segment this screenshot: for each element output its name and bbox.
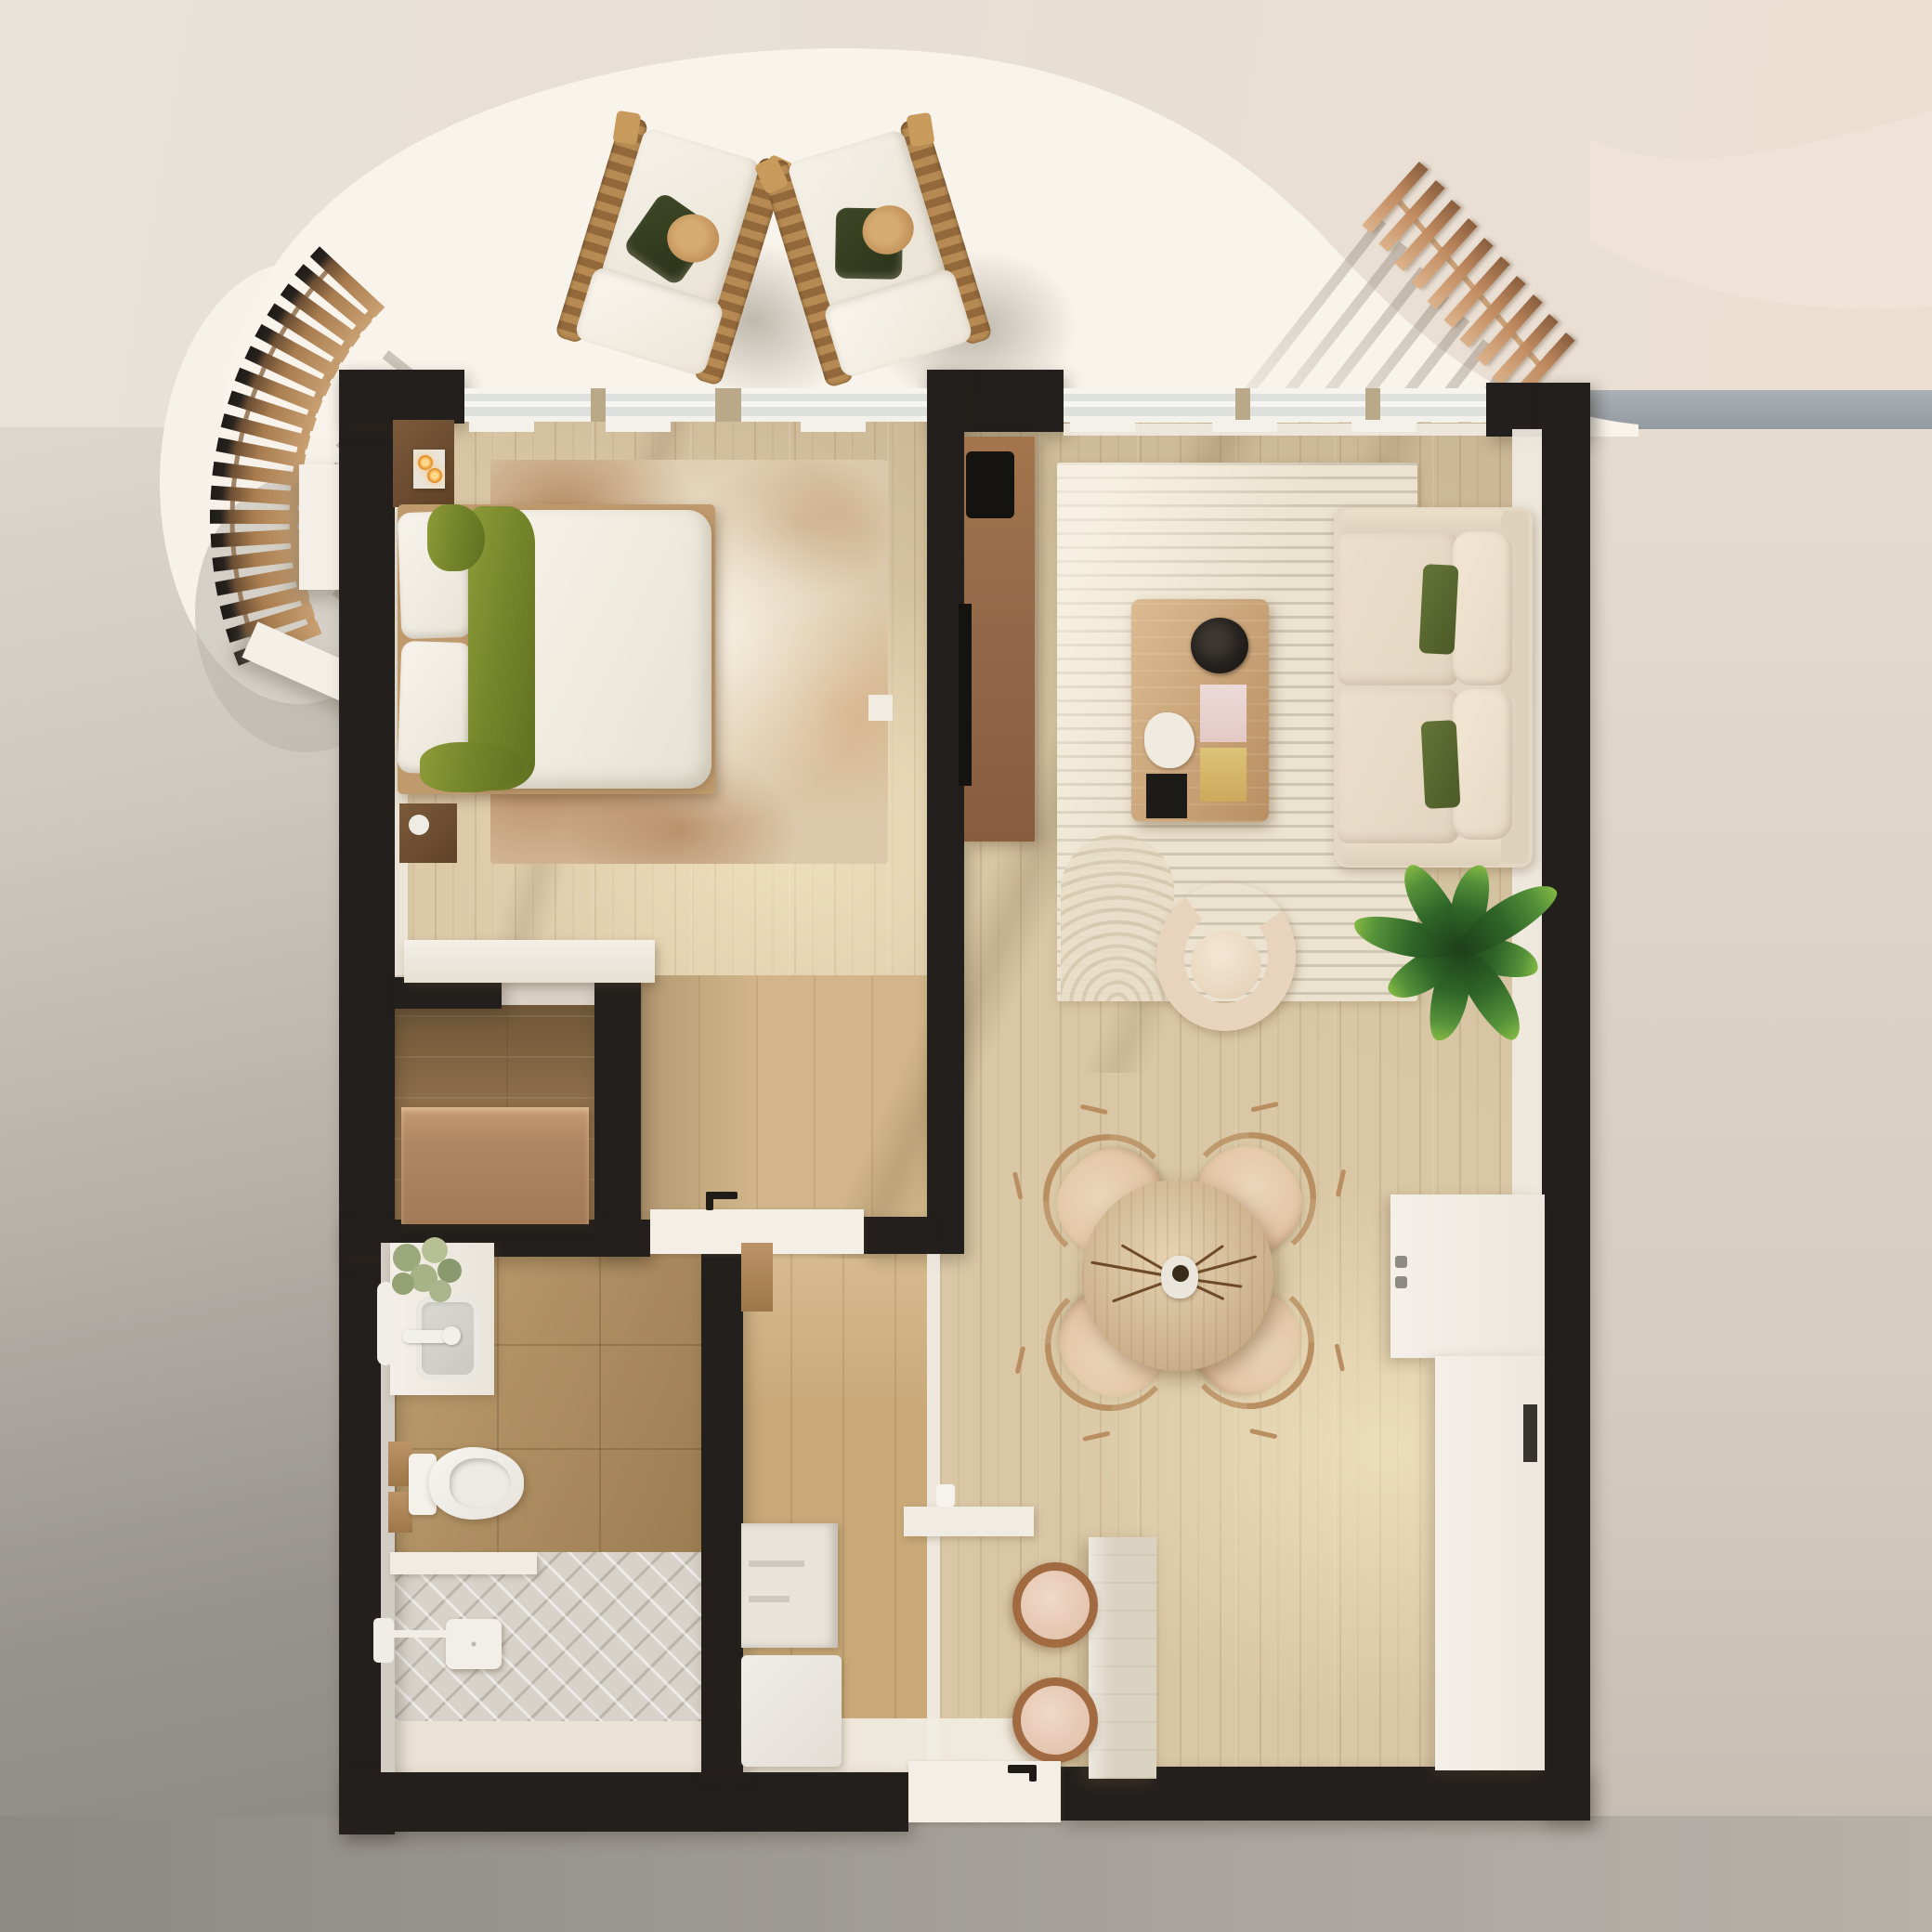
sofa — [1334, 507, 1533, 868]
window-mullion — [715, 388, 741, 422]
nightstand-bottom — [399, 803, 457, 863]
bedroom-window — [464, 388, 927, 422]
wall-top-bedroom — [339, 370, 464, 424]
wall-bathroom-nook — [701, 1254, 743, 1772]
knob — [409, 815, 429, 835]
green-throw-corner — [427, 504, 485, 571]
bar-stool — [1012, 1677, 1098, 1763]
wall-bottom-left — [339, 1772, 908, 1832]
ledge-object — [936, 1484, 955, 1507]
window-mullion — [1235, 388, 1250, 422]
bar-stool — [1012, 1562, 1098, 1648]
faucet-knob — [442, 1326, 461, 1345]
sage-puff — [429, 1280, 451, 1302]
wood-frame-cap — [612, 111, 641, 146]
door-handle — [706, 1192, 713, 1210]
towel-ring — [377, 1282, 394, 1365]
bed — [398, 504, 715, 794]
open-shelf-unit — [741, 1523, 838, 1648]
shower-valve — [373, 1618, 394, 1663]
sofa-back-pillow — [1453, 531, 1512, 685]
pergola-slat — [210, 510, 299, 525]
magazine — [1200, 685, 1247, 742]
cooktop-knob — [1395, 1256, 1407, 1268]
sofa-back-pillow — [1453, 689, 1512, 840]
kitchen-counter-lower — [1435, 1356, 1545, 1770]
kitchen-island — [1089, 1537, 1156, 1779]
window-sill-tab — [801, 420, 866, 432]
coffee-table — [1131, 599, 1269, 822]
candle-light — [418, 455, 433, 470]
bedroom-door-hinge — [868, 695, 893, 721]
window-sill-tab — [1351, 420, 1416, 432]
wood-frame-cap — [907, 112, 935, 148]
floor-plan-render — [0, 0, 1932, 1932]
tub-armchair — [1147, 873, 1306, 1039]
entry-door-handle — [1029, 1765, 1037, 1782]
dresser — [401, 1107, 589, 1224]
window-sill-tab — [1212, 420, 1277, 432]
sage-puff — [392, 1273, 414, 1295]
shelf — [749, 1560, 804, 1567]
shelf — [749, 1596, 790, 1602]
washing-machine — [741, 1655, 842, 1767]
magazine-pop-art — [1200, 748, 1247, 802]
kitchen-counter-upper — [1390, 1194, 1545, 1358]
sculpture-object — [1144, 712, 1194, 768]
nook-cabinet — [741, 1243, 773, 1312]
bedroom-bench — [404, 940, 655, 983]
window-sill-tab — [1070, 420, 1135, 432]
window-sill-tab — [606, 420, 671, 432]
wall-hall-stub — [864, 1217, 927, 1254]
nightstand-top — [393, 420, 454, 507]
shower-head — [446, 1619, 502, 1669]
toilet — [429, 1447, 524, 1520]
window-mullion — [591, 388, 606, 422]
wall-closet-hallway — [594, 975, 641, 1254]
tv-mount — [966, 451, 1014, 518]
green-pillow — [1421, 720, 1461, 809]
candle-light — [427, 468, 442, 483]
shower-back-strip — [395, 1721, 701, 1775]
cooktop-knob — [1395, 1276, 1407, 1288]
toilet-seat — [450, 1458, 511, 1508]
wall-right — [1542, 383, 1590, 1821]
oven — [1523, 1404, 1537, 1462]
window-sill-tab — [469, 420, 534, 432]
window-mullion — [1365, 388, 1380, 422]
green-pillow — [1419, 564, 1459, 655]
marble-tray — [1191, 618, 1248, 673]
vase-center — [1172, 1265, 1189, 1282]
black-book — [1146, 774, 1187, 818]
wall-tv — [959, 604, 972, 786]
living-window — [1064, 388, 1486, 422]
shower-curb — [390, 1552, 537, 1574]
white-ledge — [904, 1507, 1034, 1536]
entry-door-threshold — [908, 1761, 1061, 1822]
wall-bedroom-living — [927, 370, 964, 1254]
